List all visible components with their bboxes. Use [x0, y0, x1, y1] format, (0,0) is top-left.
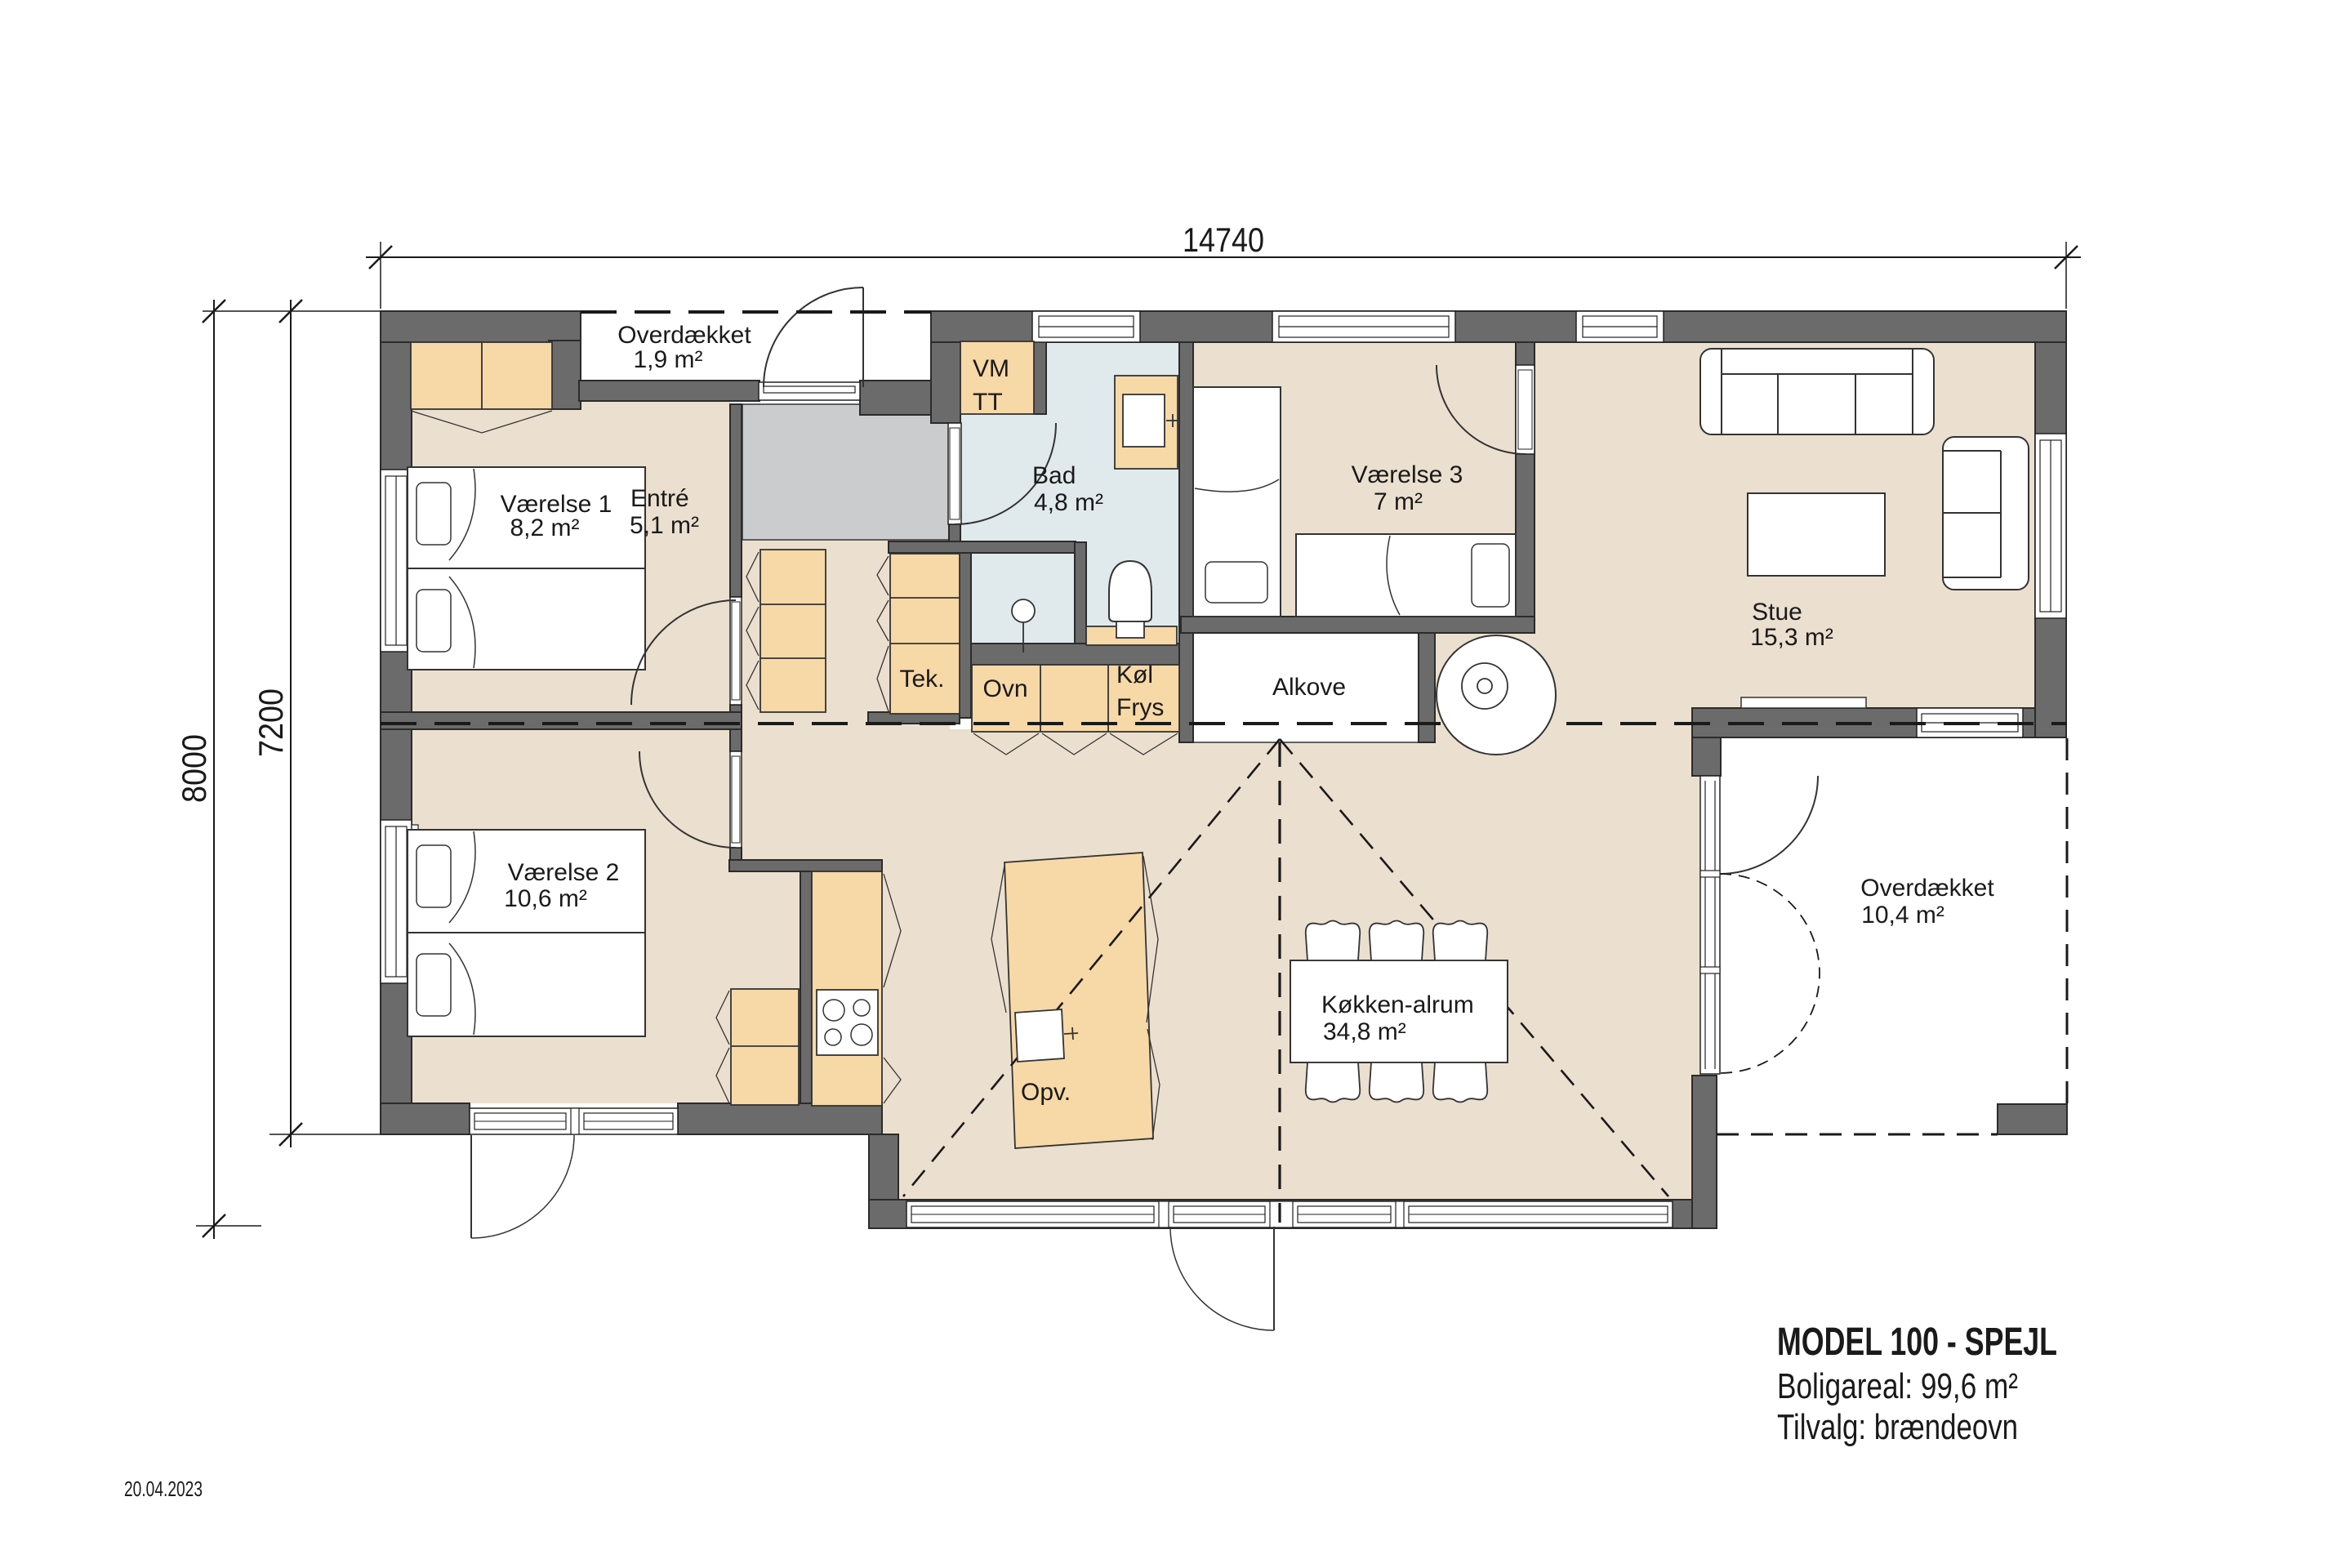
svg-text:Opv.: Opv.	[1021, 1079, 1071, 1106]
svg-text:Alkove: Alkove	[1272, 674, 1346, 701]
svg-text:4,8 m²: 4,8 m²	[1034, 489, 1103, 516]
svg-text:Entré: Entré	[630, 485, 689, 512]
svg-text:7 m²: 7 m²	[1374, 488, 1423, 515]
svg-text:Værelse 3: Værelse 3	[1352, 461, 1463, 488]
svg-text:8,2 m²: 8,2 m²	[510, 514, 579, 541]
svg-text:Tilvalg: brændeovn: Tilvalg: brændeovn	[1777, 1407, 2018, 1447]
svg-text:Køkken-alrum: Køkken-alrum	[1321, 991, 1474, 1018]
svg-text:1,9 m²: 1,9 m²	[633, 346, 702, 373]
svg-text:10,4 m²: 10,4 m²	[1861, 902, 1944, 929]
svg-text:Bad: Bad	[1032, 462, 1076, 489]
svg-text:Køl: Køl	[1116, 661, 1153, 688]
svg-text:8000: 8000	[175, 734, 213, 803]
svg-text:Stue: Stue	[1752, 599, 1802, 626]
svg-text:5,1 m²: 5,1 m²	[630, 512, 699, 539]
svg-text:Frys: Frys	[1116, 694, 1164, 721]
svg-text:Overdækket: Overdækket	[1860, 875, 1994, 902]
svg-text:34,8 m²: 34,8 m²	[1323, 1018, 1406, 1045]
svg-text:VM: VM	[973, 355, 1009, 382]
svg-text:Tek.: Tek.	[899, 666, 944, 693]
svg-text:Ovn: Ovn	[982, 675, 1027, 702]
svg-text:10,6 m²: 10,6 m²	[504, 885, 587, 912]
svg-text:20.04.2023: 20.04.2023	[124, 1477, 203, 1501]
svg-text:Værelse 2: Værelse 2	[508, 859, 620, 886]
svg-text:14740: 14740	[1183, 220, 1264, 259]
svg-text:Overdækket: Overdækket	[617, 322, 751, 349]
svg-text:15,3 m²: 15,3 m²	[1750, 624, 1833, 651]
svg-text:Boligareal: 99,6 m²: Boligareal: 99,6 m²	[1777, 1366, 2018, 1406]
svg-text:MODEL 100 - SPEJL: MODEL 100 - SPEJL	[1777, 1321, 2057, 1364]
svg-text:7200: 7200	[252, 688, 290, 757]
svg-text:TT: TT	[973, 389, 1003, 416]
